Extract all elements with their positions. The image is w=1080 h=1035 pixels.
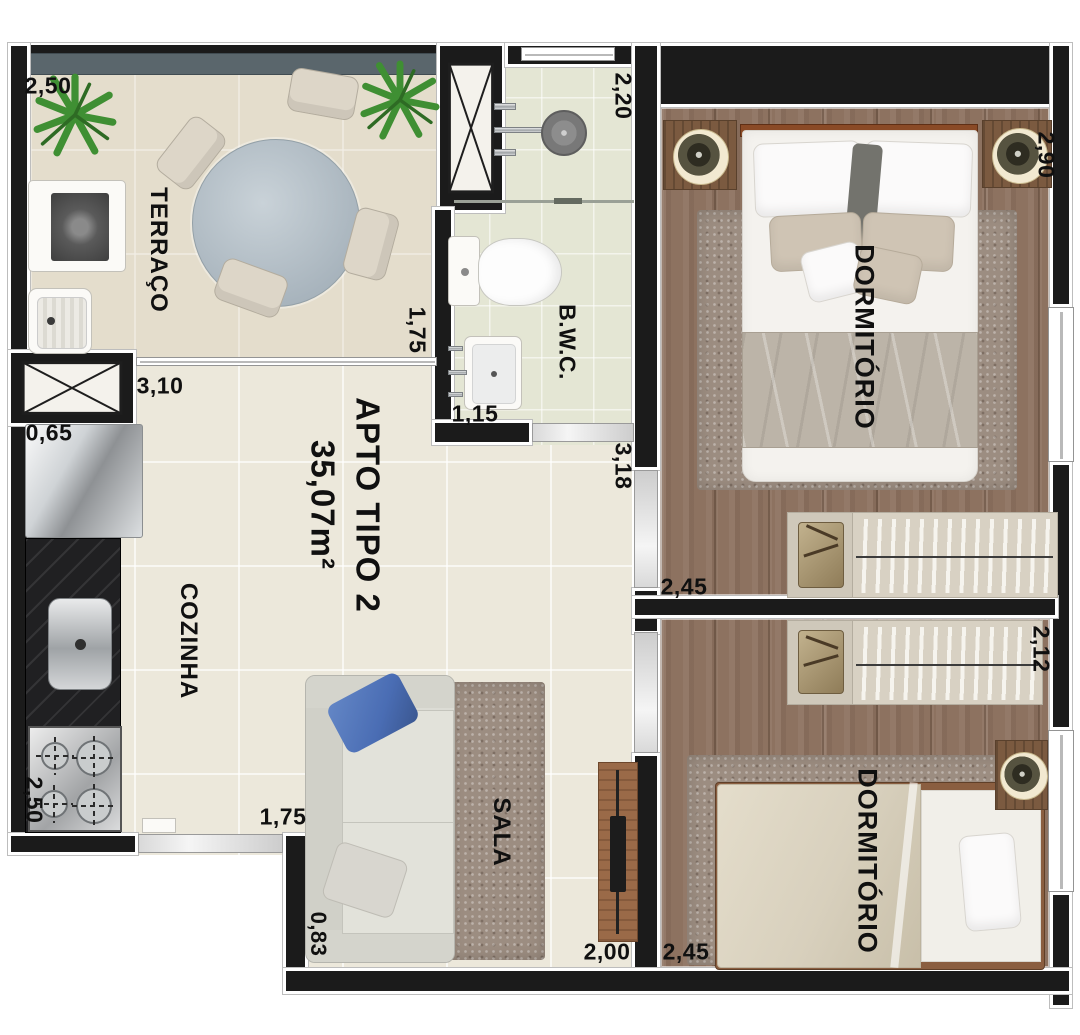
- toilet-tank: [448, 236, 480, 306]
- towel-bar: [448, 392, 463, 397]
- shower-knob: [494, 149, 516, 156]
- tv-icon: [610, 816, 626, 892]
- measure-dorm2-width: 2,45: [663, 939, 710, 966]
- bedroom1-window: [1048, 307, 1074, 462]
- entrance-door-sill: [138, 834, 283, 853]
- kitchen-sink: [48, 598, 112, 690]
- duct-icon-left: [20, 361, 124, 415]
- measure-sala-width: 2,00: [584, 939, 631, 966]
- floor-plan: APTO TIPO 2 35,07m² TERRAÇO COZINHA SALA…: [0, 0, 1080, 1035]
- lamp-icon: [1000, 752, 1048, 800]
- shower-glass-line: [454, 200, 634, 203]
- toilet-bowl: [478, 238, 562, 306]
- outside-area: [0, 855, 283, 1035]
- measure-dorm1-depth: 2,45: [661, 574, 708, 601]
- duct-icon-top: [448, 60, 494, 196]
- apartment-title-line2: 35,07m²: [300, 397, 345, 613]
- wall-bottom: [283, 968, 1072, 994]
- bathroom-sink: [464, 336, 522, 410]
- measure-bwc-left: 1,75: [404, 307, 431, 354]
- towel-bar: [448, 370, 467, 375]
- towel-bar: [448, 346, 463, 351]
- folded-clothes-icon: [798, 522, 844, 588]
- measure-bwc-width: 2,20: [610, 73, 637, 120]
- bedroom2-window: [1048, 730, 1074, 892]
- kitchen-window-310: [136, 357, 437, 366]
- room-label-terraco: TERRAÇO: [144, 187, 172, 313]
- room-label-bwc: B.W.C.: [554, 304, 581, 380]
- hanger-rack-icon: [854, 627, 1040, 700]
- room-label-cozinha: COZINHA: [174, 583, 202, 699]
- room-label-sala: SALA: [487, 797, 515, 866]
- measure-shaft-width: 0,65: [26, 420, 73, 447]
- shower-head-icon: [541, 110, 587, 156]
- apartment-title-line1: APTO TIPO 2: [345, 397, 390, 613]
- shower-glass-door: [554, 198, 582, 204]
- lamp-icon: [673, 129, 729, 185]
- bathroom-window: [521, 47, 615, 61]
- measure-kitchen-pass: 3,10: [137, 373, 184, 400]
- entrance-step: [142, 818, 176, 833]
- bathroom-door-sill: [532, 423, 634, 442]
- wall-top-bedroom1: [640, 43, 1072, 107]
- measure-entrance-width: 1,75: [260, 804, 307, 831]
- hanger-rack-icon: [854, 519, 1055, 593]
- shower-knob: [494, 103, 516, 110]
- room-label-dormitorio1: DORMITÓRIO: [849, 244, 880, 430]
- measure-bwc-sink: 1,15: [452, 401, 499, 428]
- bedroom1-door-sill: [634, 470, 658, 588]
- measure-hall-height: 3,18: [610, 443, 637, 490]
- measure-wardrobe-depth: 2,12: [1028, 626, 1055, 673]
- plant-icon: [357, 57, 443, 143]
- measure-sala-wall: 0,83: [305, 912, 331, 957]
- bedroom2-door-sill: [634, 632, 658, 753]
- folded-clothes-icon: [798, 630, 844, 694]
- wall-kitchen-bottom: [8, 833, 138, 855]
- bed2-pillow: [958, 832, 1022, 933]
- room-label-dormitorio2: DORMITÓRIO: [852, 768, 883, 954]
- washing-machine: [28, 180, 126, 272]
- measure-dorm1-width: 2,90: [1033, 132, 1060, 179]
- laundry-tub: [28, 288, 92, 354]
- measure-terraco-width: 2,50: [25, 73, 72, 100]
- single-bed-duvet: [717, 784, 921, 968]
- measure-kitchen-depth: 2,50: [21, 777, 48, 824]
- apartment-title: APTO TIPO 2 35,07m²: [300, 397, 389, 613]
